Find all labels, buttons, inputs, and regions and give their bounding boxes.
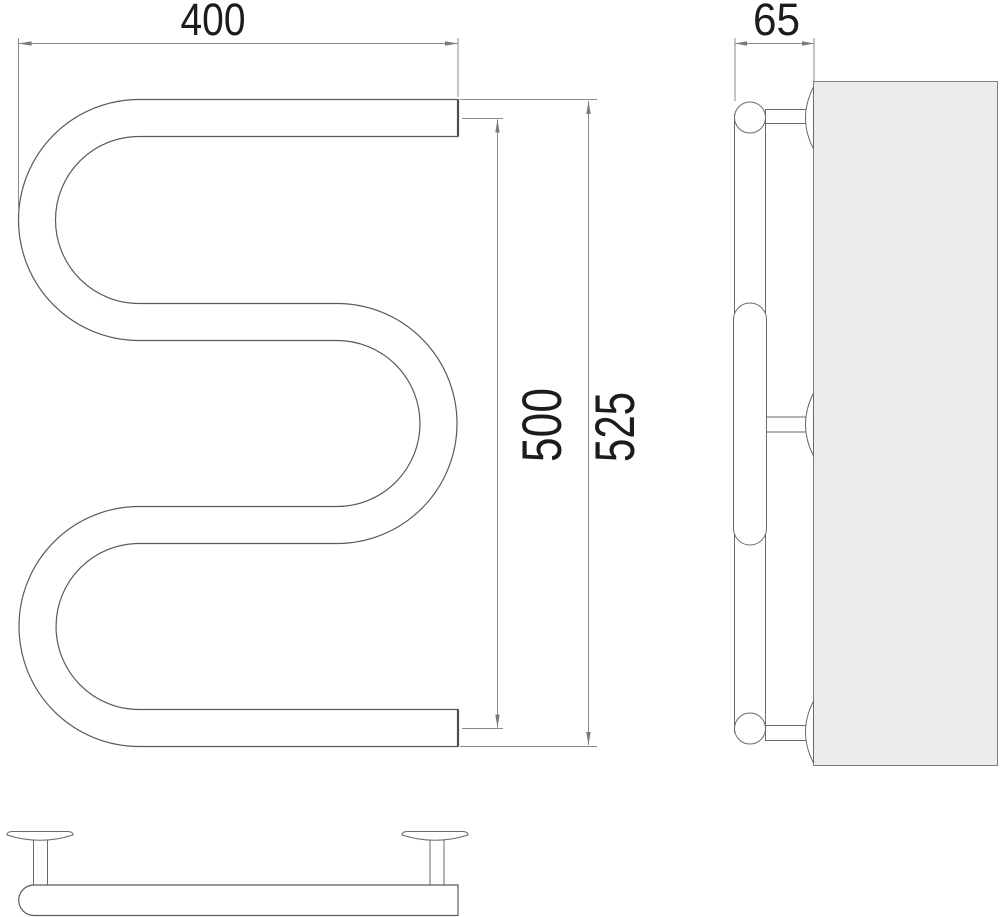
wall <box>814 82 998 766</box>
wall-flange-plan-right <box>402 832 468 841</box>
tube-side-middle-loop <box>734 303 767 545</box>
arrowhead-up <box>586 101 590 114</box>
wall-flange-middle <box>806 393 814 456</box>
dimension-axis-height-500: 500 <box>462 119 573 729</box>
bracket-stem-left <box>34 840 48 886</box>
arrowhead-left <box>19 41 32 45</box>
arrowhead-left <box>735 41 747 45</box>
bracket-arm-bottom <box>766 726 808 741</box>
arrowhead-up <box>495 120 499 133</box>
dimension-depth-65: 65 <box>735 0 814 101</box>
towel-rail-technical-drawing: 400 500 525 <box>0 0 1000 917</box>
wall-flange-plan-left <box>7 832 73 841</box>
dim-label-depth: 65 <box>753 0 800 45</box>
serpentine-tube-outline <box>19 100 459 747</box>
arrowhead-down <box>586 732 590 745</box>
side-view <box>734 82 998 766</box>
tube-plan-outline <box>19 885 458 916</box>
wall-flange-bottom <box>806 701 814 763</box>
arrowhead-down <box>495 715 499 728</box>
arrowhead-right <box>445 41 458 45</box>
dim-label-width: 400 <box>181 0 246 45</box>
bottom-view <box>7 832 468 916</box>
front-view <box>19 100 459 747</box>
bracket-arm-top <box>766 110 808 124</box>
technical-drawing-page: 400 500 525 <box>0 0 1000 917</box>
bracket-stem-right <box>430 840 444 886</box>
wall-flange-top <box>806 87 814 149</box>
tube-end-circle-top <box>735 102 766 133</box>
tube-end-circle-bottom <box>735 713 766 744</box>
bracket-arm-middle <box>766 417 808 432</box>
arrowhead-right <box>802 41 814 45</box>
dim-label-axis-height: 500 <box>510 388 573 462</box>
dim-label-overall-height: 525 <box>583 392 646 462</box>
